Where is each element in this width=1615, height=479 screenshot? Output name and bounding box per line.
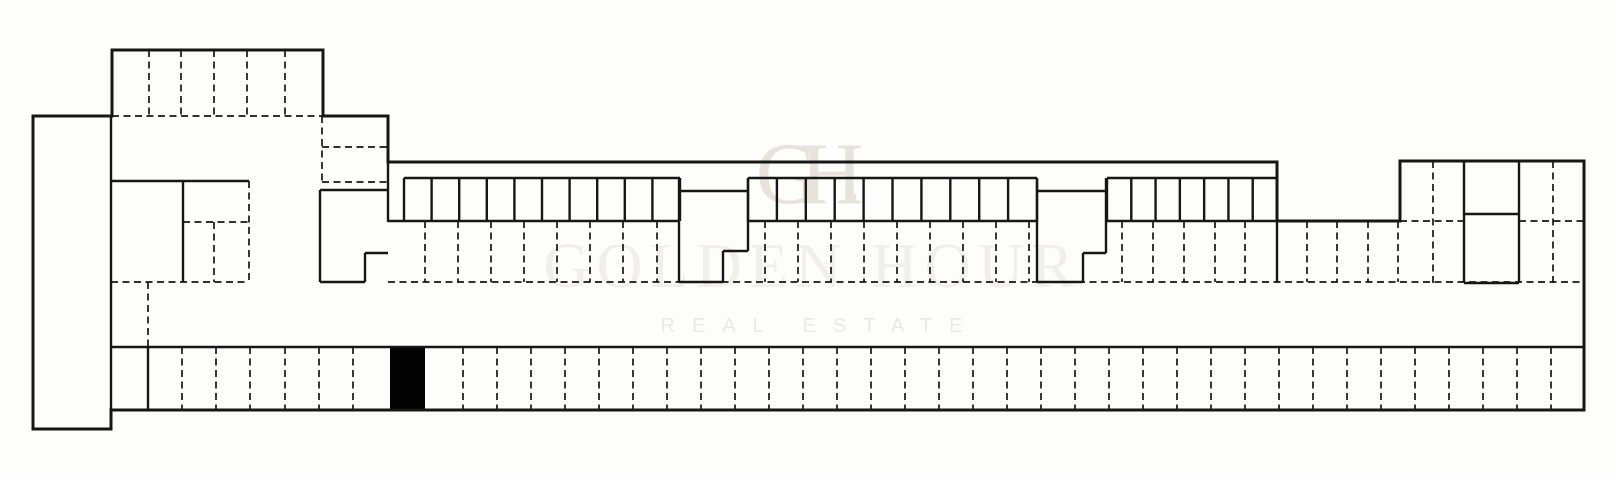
watermark-monogram-text: GH xyxy=(756,126,861,223)
watermark-subtitle-text: REAL ESTATE xyxy=(661,315,980,337)
watermark: GH GOLDEN HOUR REAL ESTATE xyxy=(543,126,1080,337)
watermark-title-text: GOLDEN HOUR xyxy=(543,230,1080,301)
floor-plan: GH GOLDEN HOUR REAL ESTATE xyxy=(0,0,1615,479)
watermark-monogram-dot-icon xyxy=(848,193,857,202)
floor-plan-page: GH GOLDEN HOUR REAL ESTATE xyxy=(0,0,1615,479)
highlighted-parking-spot[interactable] xyxy=(390,348,425,410)
